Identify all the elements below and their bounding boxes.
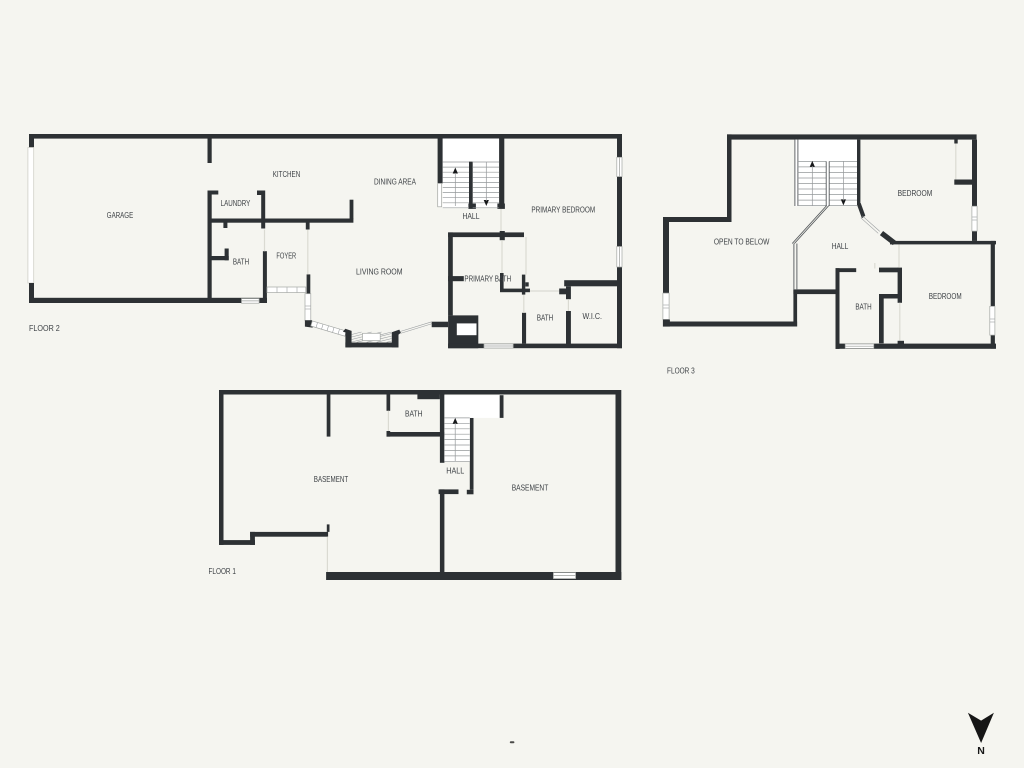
svg-text:PRIMARY BATH: PRIMARY BATH <box>464 275 511 284</box>
svg-text:KITCHEN: KITCHEN <box>273 170 301 179</box>
svg-text:BATH: BATH <box>855 302 871 311</box>
svg-text:HALL: HALL <box>832 242 849 251</box>
svg-text:N: N <box>977 745 985 757</box>
svg-text:DINING AREA: DINING AREA <box>374 178 417 187</box>
svg-text:BEDROOM: BEDROOM <box>929 292 962 301</box>
svg-text:FLOOR 3: FLOOR 3 <box>667 367 695 376</box>
svg-text:BEDROOM: BEDROOM <box>898 189 933 198</box>
svg-text:BASEMENT: BASEMENT <box>512 484 549 493</box>
svg-text:LAUNDRY: LAUNDRY <box>221 199 251 208</box>
svg-text:W.I.C.: W.I.C. <box>583 312 603 321</box>
svg-text:HALL: HALL <box>446 467 465 476</box>
svg-text:OPEN TO BELOW: OPEN TO BELOW <box>714 237 770 246</box>
svg-text:BATH: BATH <box>405 409 423 418</box>
svg-text:PRIMARY BEDROOM: PRIMARY BEDROOM <box>531 206 595 215</box>
svg-text:BATH: BATH <box>233 258 249 267</box>
svg-text:BATH: BATH <box>537 314 554 323</box>
svg-text:LIVING ROOM: LIVING ROOM <box>356 268 403 277</box>
svg-text:GARAGE: GARAGE <box>107 211 133 220</box>
svg-text:FOYER: FOYER <box>276 251 296 260</box>
svg-text:HALL: HALL <box>463 212 481 221</box>
svg-text:FLOOR 1: FLOOR 1 <box>209 567 237 576</box>
svg-text:BASEMENT: BASEMENT <box>314 475 349 484</box>
svg-text:FLOOR 2: FLOOR 2 <box>29 324 60 333</box>
